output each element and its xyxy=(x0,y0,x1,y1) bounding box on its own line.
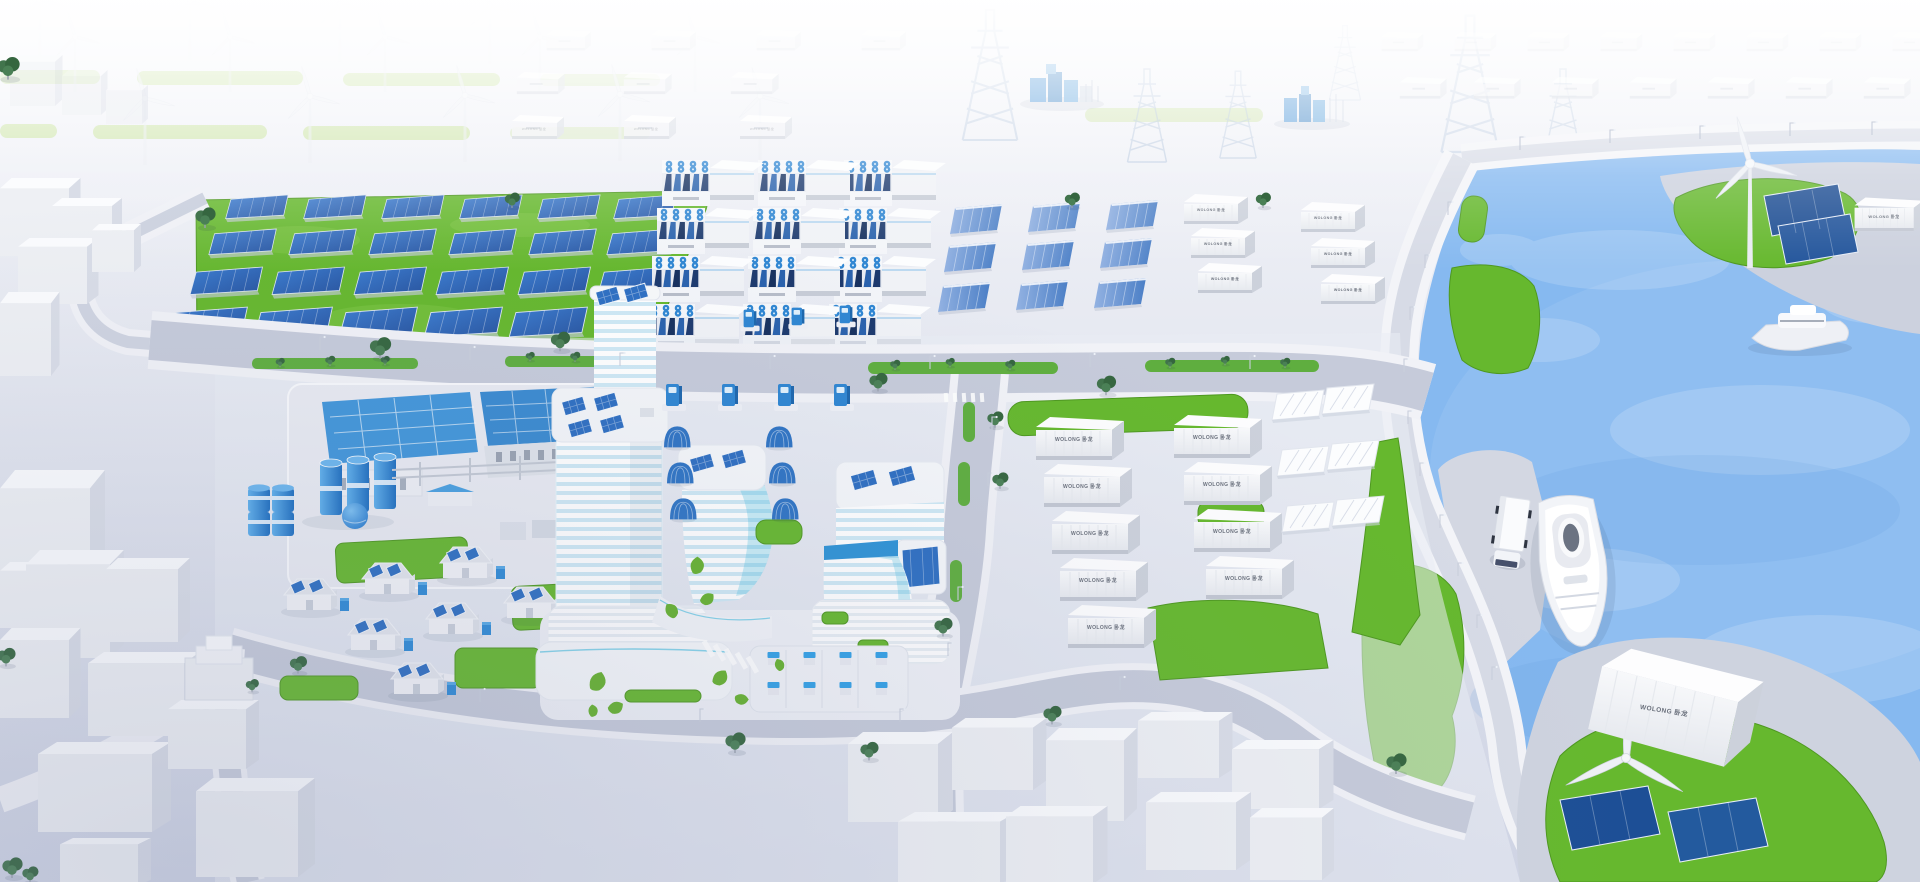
smart-energy-city-illustration: WOLONG 卧龙 WOLONG 卧龙 WOLONG 卧龙 xyxy=(0,0,1920,882)
scene-canvas: WOLONG 卧龙 WOLONG 卧龙 WOLONG 卧龙 xyxy=(0,0,1920,882)
corner-vignette xyxy=(0,0,1920,882)
